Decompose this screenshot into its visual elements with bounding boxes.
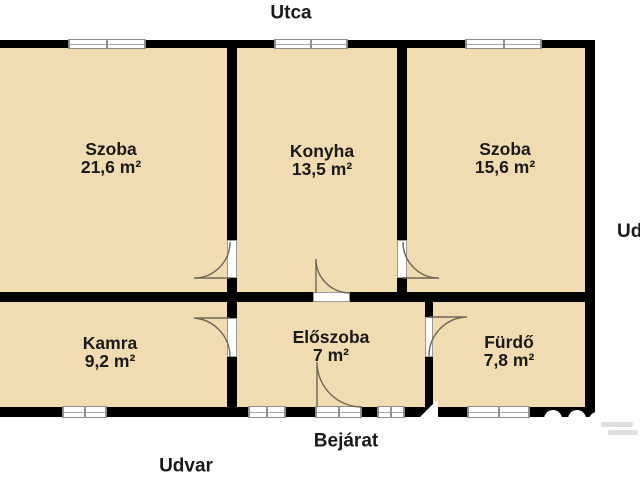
window-frame-tick bbox=[274, 40, 276, 48]
window-frame-tick bbox=[346, 40, 348, 48]
window-frame-tick bbox=[315, 407, 317, 417]
window-frame-tick bbox=[498, 407, 500, 417]
window-frame-tick bbox=[310, 40, 312, 48]
room-area: 15,6 m² bbox=[475, 158, 535, 176]
wall-segment bbox=[107, 407, 248, 417]
door-panel bbox=[313, 292, 350, 302]
wall-segment bbox=[405, 407, 467, 417]
window-frame-tick bbox=[84, 407, 86, 417]
room-area: 7,8 m² bbox=[484, 351, 535, 369]
watermark-smudge bbox=[601, 422, 633, 427]
window-frame-tick bbox=[338, 407, 340, 417]
room-label-kamra: Kamra9,2 m² bbox=[83, 334, 137, 370]
room-label-szoba-1: Szoba21,6 m² bbox=[81, 140, 141, 176]
wall-segment bbox=[425, 302, 433, 317]
wall-segment bbox=[585, 40, 595, 417]
window bbox=[274, 39, 348, 49]
wall-segment bbox=[0, 407, 62, 417]
wall-segment bbox=[227, 302, 237, 318]
wall-segment bbox=[286, 407, 315, 417]
wall-segment bbox=[425, 357, 433, 407]
door-panel bbox=[425, 317, 433, 357]
room-name: Kamra bbox=[83, 334, 137, 352]
window-frame-tick bbox=[403, 407, 405, 417]
window bbox=[465, 39, 542, 49]
window-frame-tick bbox=[68, 40, 70, 48]
wall-segment bbox=[397, 278, 407, 292]
room-name: Szoba bbox=[475, 140, 535, 158]
window-frame-tick bbox=[377, 407, 379, 417]
wall-segment bbox=[530, 407, 595, 417]
yard-label-bottom: Udvar bbox=[159, 457, 213, 476]
window-frame-tick bbox=[106, 40, 108, 48]
window-frame-tick bbox=[248, 407, 250, 417]
street-label: Utca bbox=[270, 4, 311, 23]
wall-segment bbox=[0, 40, 68, 48]
wall-segment bbox=[227, 48, 237, 240]
window bbox=[377, 406, 405, 418]
room-name: Előszoba bbox=[293, 328, 370, 346]
wall-segment bbox=[0, 292, 313, 302]
window bbox=[315, 406, 362, 418]
watermark-smudge bbox=[608, 430, 638, 435]
wall-segment bbox=[362, 407, 377, 417]
window-frame-tick bbox=[266, 407, 268, 417]
wall-segment bbox=[350, 292, 595, 302]
room-area: 13,5 m² bbox=[290, 160, 354, 178]
window-frame-tick bbox=[105, 407, 107, 417]
room-name: Konyha bbox=[290, 142, 354, 160]
window-frame-tick bbox=[144, 40, 146, 48]
window bbox=[68, 39, 146, 49]
room-area: 9,2 m² bbox=[83, 352, 137, 370]
room-name: Szoba bbox=[81, 140, 141, 158]
door-panel bbox=[227, 318, 237, 357]
wall-segment bbox=[227, 357, 237, 407]
window-frame-tick bbox=[467, 407, 469, 417]
window-frame-tick bbox=[390, 407, 392, 417]
door-panel bbox=[227, 240, 237, 278]
room-label-furdo: Fürdő7,8 m² bbox=[484, 333, 535, 369]
room-name: Fürdő bbox=[484, 333, 535, 351]
wall-segment bbox=[348, 40, 465, 48]
window-frame-tick bbox=[62, 407, 64, 417]
wall-segment bbox=[227, 278, 237, 292]
window-frame-tick bbox=[360, 407, 362, 417]
window bbox=[467, 406, 530, 418]
entrance-label: Bejárat bbox=[314, 432, 378, 451]
room-area: 21,6 m² bbox=[81, 158, 141, 176]
window-frame-tick bbox=[528, 407, 530, 417]
room-label-szoba-2: Szoba15,6 m² bbox=[475, 140, 535, 176]
window-frame-tick bbox=[540, 40, 542, 48]
window-frame-tick bbox=[465, 40, 467, 48]
window bbox=[248, 406, 286, 418]
window bbox=[62, 406, 107, 418]
floor-plan-canvas: Utca Bejárat Udvar Udvar Szoba21,6 m²Kon… bbox=[0, 0, 640, 480]
door-panel bbox=[397, 240, 407, 278]
wall-segment bbox=[146, 40, 274, 48]
room-label-konyha: Konyha13,5 m² bbox=[290, 142, 354, 178]
room-label-eloszoba: Előszoba7 m² bbox=[293, 328, 370, 364]
yard-label-right: Udvar bbox=[617, 222, 640, 241]
room-area: 7 m² bbox=[293, 346, 370, 364]
wall-segment bbox=[397, 48, 407, 240]
window-frame-tick bbox=[284, 407, 286, 417]
window-frame-tick bbox=[503, 40, 505, 48]
